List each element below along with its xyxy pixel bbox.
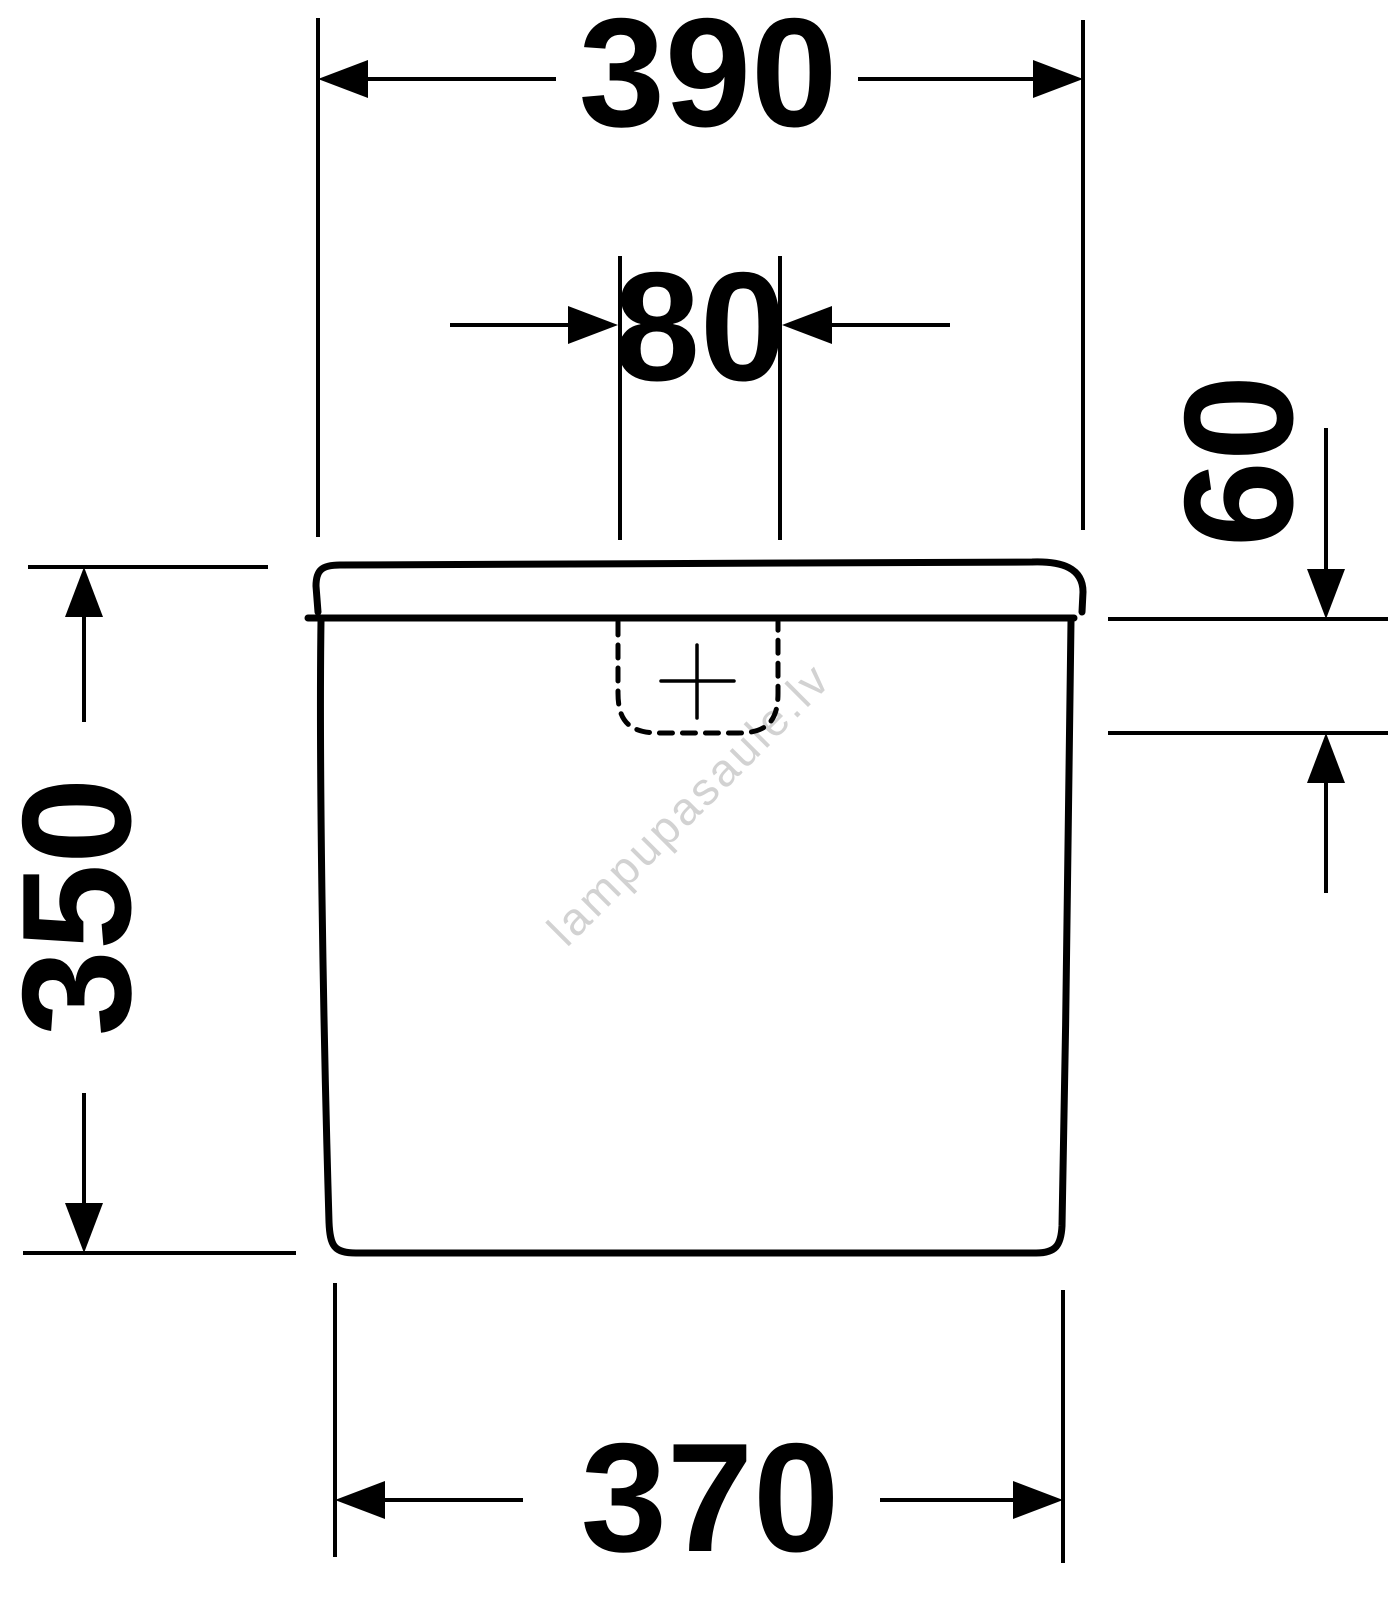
arrowhead-left-icon xyxy=(335,1481,385,1519)
dim-label-370: 370 xyxy=(581,1411,840,1584)
dim-lid-depth-right: 60 xyxy=(1108,375,1388,893)
arrowhead-inward-left-icon xyxy=(568,306,618,344)
watermark-text: lampupasaule.lv xyxy=(537,652,841,956)
dim-label-350: 350 xyxy=(0,778,163,1037)
cistern-technical-drawing: lampupasaule.lv 390 xyxy=(0,0,1391,1600)
dim-label-390: 390 xyxy=(579,0,838,159)
dim-bottom-width: 370 xyxy=(335,1283,1063,1584)
arrowhead-up-icon xyxy=(65,567,103,617)
center-cross-icon xyxy=(661,645,734,718)
dim-label-60: 60 xyxy=(1152,375,1325,547)
cistern-lid xyxy=(316,562,1083,612)
cistern-outline xyxy=(308,562,1083,1253)
arrowhead-down-icon xyxy=(1307,569,1345,619)
dim-overall-height: 350 xyxy=(0,567,296,1253)
dim-label-80: 80 xyxy=(614,240,786,413)
arrowhead-inward-right-icon xyxy=(782,306,832,344)
arrowhead-down-icon xyxy=(65,1203,103,1253)
arrowhead-up-icon xyxy=(1307,733,1345,783)
arrowhead-right-icon xyxy=(1033,60,1083,98)
dim-flush-button-width: 80 xyxy=(450,240,950,540)
arrowhead-right-icon xyxy=(1013,1481,1063,1519)
watermark: lampupasaule.lv xyxy=(537,652,841,956)
arrowhead-left-icon xyxy=(318,60,368,98)
drawing-canvas: lampupasaule.lv 390 xyxy=(0,0,1391,1600)
